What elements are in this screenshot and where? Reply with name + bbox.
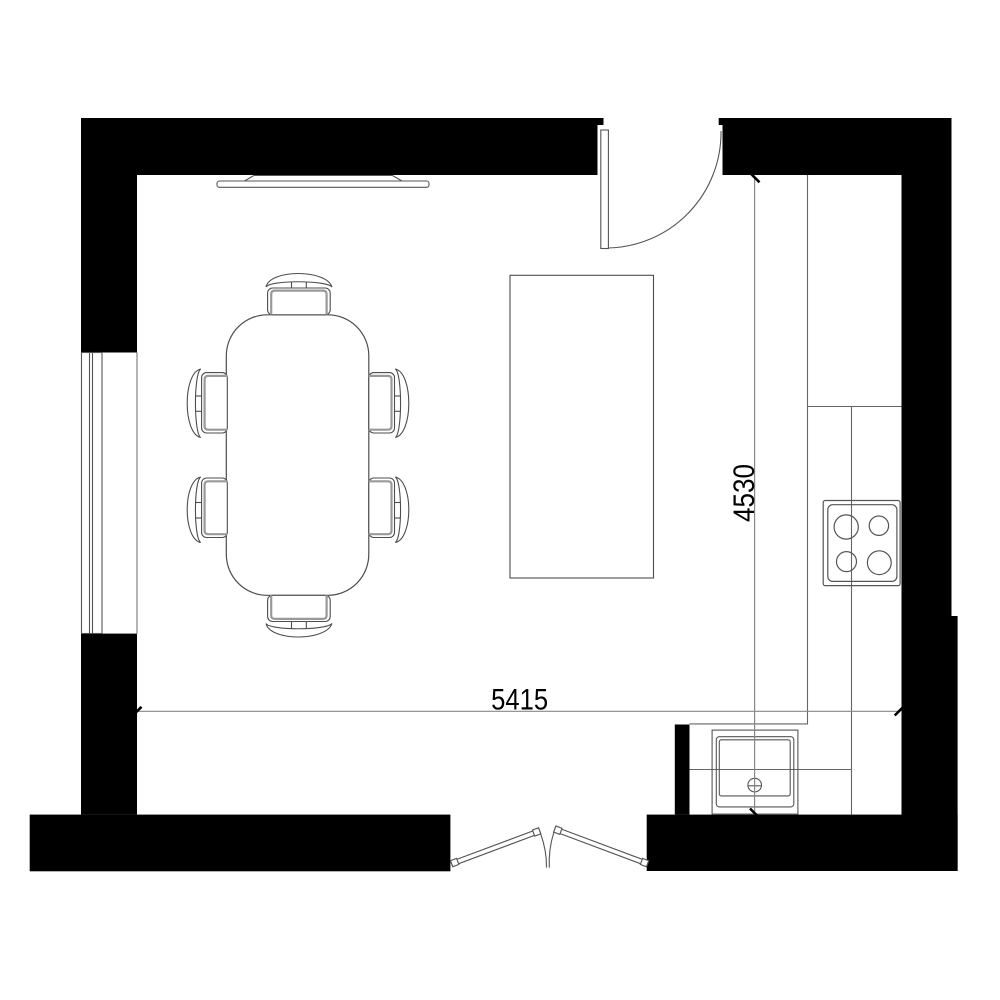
svg-text:4530: 4530 <box>728 464 761 522</box>
svg-text:5415: 5415 <box>491 683 548 716</box>
